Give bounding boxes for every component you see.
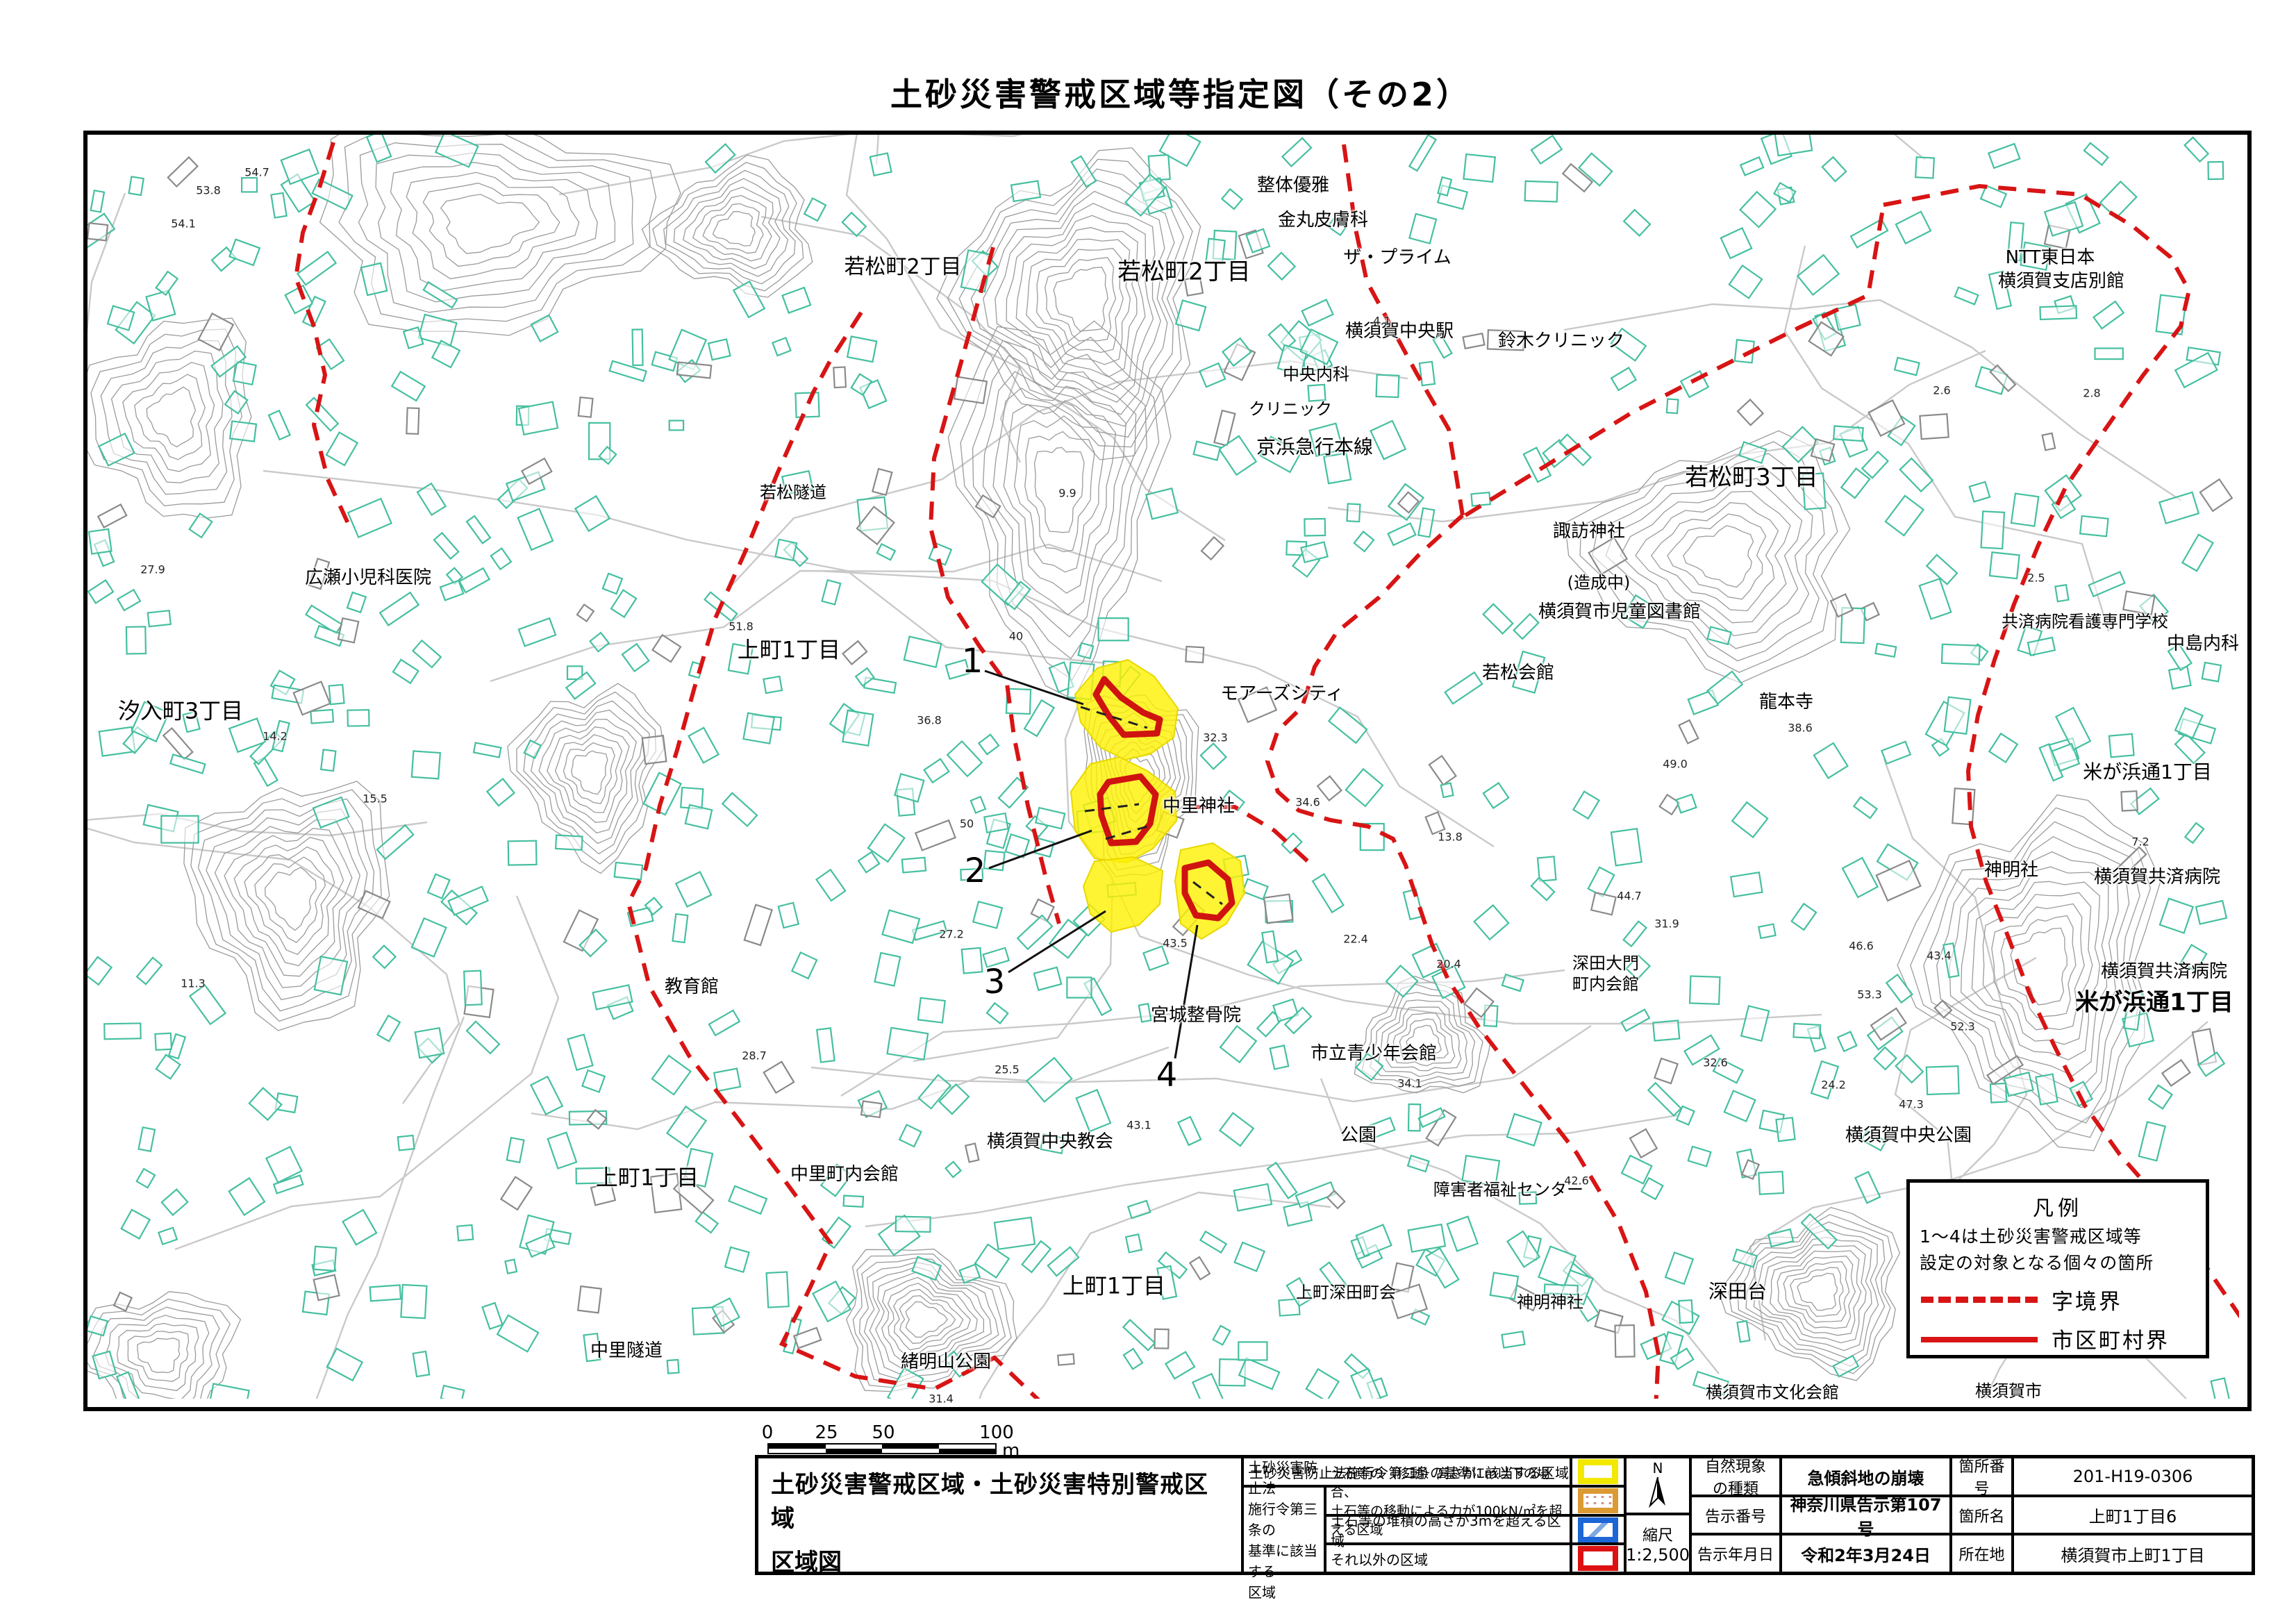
map-label: 横須賀市文化会館 (1706, 1383, 1839, 1403)
map-label: 若松町2丁目 (1117, 258, 1251, 285)
legend-row4-text: それ以外の区域 (1325, 1544, 1571, 1573)
legend-group-label-line: 基準に該当する (1248, 1540, 1324, 1582)
hazard-site-number: 1 (962, 642, 983, 681)
map-label: 中里隧道 (590, 1341, 663, 1362)
spot-elevation-label: 2.6 (1933, 384, 1950, 397)
map-label: 横須賀共済病院 (2094, 867, 2220, 888)
spot-elevation-label: 9.9 (1058, 487, 1076, 500)
spot-elevation-label: 32.3 (1203, 731, 1228, 744)
spot-elevation-label: 20.4 (1436, 958, 1461, 971)
spot-elevation-label: 47.3 (1899, 1098, 1924, 1111)
map-label: 横須賀中央公園 (1845, 1126, 1972, 1147)
info-value-notice-number: 神奈川県告示第107号 (1781, 1496, 1951, 1534)
info-label-address: 所在地 (1951, 1534, 2013, 1573)
map-label: 若松町3丁目 (1685, 464, 1818, 491)
north-arrow-icon (1646, 1475, 1670, 1510)
spot-elevation-label: 52.3 (1950, 1020, 1975, 1033)
map-label: 共済病院看護専門学校 (2002, 613, 2168, 632)
spot-elevation-label: 25.5 (995, 1063, 1020, 1076)
map-label: 深田大門 (1572, 954, 1639, 974)
info-label-site-name: 箇所名 (1951, 1496, 2013, 1534)
info-value-site-number: 201-H19-0306 (2013, 1457, 2253, 1496)
spot-elevation-label: 50 (960, 817, 974, 831)
spot-elevation-label: 49.0 (1663, 758, 1688, 771)
map-label: (造成中) (1567, 574, 1631, 593)
spot-elevation-label: 32.6 (1703, 1056, 1728, 1069)
legend-entry-label: 字境界 (2052, 1284, 2122, 1315)
spot-elevation-label: 13.8 (1438, 831, 1463, 844)
map-label: 上町深田町会 (1296, 1283, 1396, 1303)
hazard-site-number: 3 (984, 963, 1006, 1001)
dashed-line-sample (1921, 1297, 2038, 1303)
map-label: 中央内科 (1283, 365, 1349, 385)
spot-elevation-label: 24.2 (1821, 1079, 1846, 1092)
scale-tick-25: 25 (815, 1422, 838, 1443)
map-label: 金丸皮膚科 (1278, 210, 1368, 231)
spot-elevation-label: 4.1 (1373, 315, 1390, 328)
map-label: 深田台 (1708, 1281, 1767, 1303)
map-label: 諏訪神社 (1553, 522, 1625, 542)
map-label: 公園 (1340, 1126, 1376, 1147)
map-sheet-title-line2: 区域図 (771, 1543, 842, 1577)
spot-elevation-label: 11.3 (181, 977, 206, 990)
map-label: 障害者福祉センター (1433, 1181, 1583, 1200)
spot-elevation-label: 38.6 (1788, 722, 1813, 735)
scale-tick-0: 0 (762, 1422, 774, 1443)
map-label: 横須賀支店別館 (1998, 272, 2124, 292)
spot-elevation-label: 44.7 (1617, 890, 1642, 903)
hazard-map-page: 土砂災害警戒区域等指定図（その2） 若松町2丁目若松町2丁目整体優雅金丸皮膚科ザ… (0, 0, 2296, 1623)
map-label: 町内会館 (1572, 975, 1639, 994)
spot-elevation-label: 22.4 (1343, 933, 1368, 946)
map-label: 広瀬小児科医院 (305, 568, 431, 589)
spot-elevation-label: 15.5 (363, 792, 388, 806)
legend-title: 凡例 (1910, 1191, 2206, 1222)
spot-elevation-label: 31.9 (1654, 917, 1679, 931)
spot-elevation-label: 34.6 (1295, 796, 1320, 809)
map-label: 鈴木クリニック (1498, 331, 1624, 352)
spot-elevation-label: 42.6 (1564, 1174, 1589, 1188)
scale-tick-50: 50 (872, 1422, 895, 1443)
legend-row2-text-line1: 土石等の（移動）高さが1m以下の場合、 (1331, 1463, 1570, 1501)
info-label-phenomenon: 自然現象の種類 (1702, 1454, 1769, 1499)
spot-elevation-label: 53.3 (1857, 988, 1882, 1001)
solid-line-sample (1921, 1337, 2038, 1342)
map-label: クリニック (1249, 400, 1332, 419)
map-sheet-title-line1: 土砂災害警戒区域・土砂災害特別警戒区域 (771, 1465, 1229, 1533)
spot-elevation-label: 51.8 (729, 620, 754, 633)
red-zone-swatch (1578, 1546, 1618, 1571)
map-label: 整体優雅 (1257, 176, 1329, 197)
spot-elevation-label: 53.8 (196, 184, 221, 197)
spot-elevation-label: 43.4 (1927, 949, 1952, 963)
spot-elevation-label: 2.5 (2027, 572, 2045, 585)
spot-elevation-label: 2.8 (2083, 387, 2100, 400)
info-table: 土砂災害警戒区域・土砂災害特別警戒区域 区域図 土砂災害防止法施行令第二条の基準… (757, 1457, 2253, 1573)
map-label: 緒明山公園 (901, 1352, 991, 1373)
map-label: 横須賀市児童図書館 (1538, 602, 1701, 623)
spot-elevation-label: 27.9 (140, 563, 165, 576)
map-label: 米が浜通1丁目 (2075, 989, 2233, 1016)
map-label: 市立青少年会館 (1311, 1044, 1437, 1065)
spot-elevation-label: 7.2 (2131, 835, 2149, 849)
map-label: 汐入町3丁目 (118, 699, 243, 724)
spot-elevation-label: 36.8 (917, 714, 942, 727)
legend-group-label-line: 施行令第三条の (1248, 1499, 1324, 1540)
spot-elevation-label: 43.1 (1126, 1119, 1151, 1132)
map-label: 宮城整骨院 (1151, 1006, 1241, 1026)
map-label: 上町1丁目 (596, 1165, 699, 1191)
map-label: 教育館 (665, 977, 719, 998)
map-label: 若松会館 (1482, 663, 1554, 684)
map-label: 京浜急行本線 (1256, 436, 1373, 458)
spot-elevation-label: 34.1 (1397, 1077, 1422, 1090)
spot-elevation-label: 14.2 (263, 730, 288, 743)
map-label: 龍本寺 (1759, 692, 1813, 713)
legend-group-label-line: 区域 (1248, 1582, 1276, 1603)
hazard-site-number: 2 (965, 851, 986, 890)
map-label: 横須賀共済病院 (2101, 962, 2227, 983)
map-label: 横須賀中央駅 (1345, 322, 1454, 342)
blue-zone-swatch (1578, 1517, 1618, 1542)
legend-row3-text: 土石等の堆積の高さが3mを超える区域 (1325, 1515, 1571, 1544)
legend-entry-municipal-boundary: 市区町村界 (1910, 1322, 2206, 1352)
map-label: 中島内科 (2167, 634, 2239, 655)
map-label: 若松町2丁目 (844, 256, 961, 280)
info-label-notice-date: 告示年月日 (1690, 1534, 1781, 1573)
map-label: 横須賀中央教会 (987, 1132, 1113, 1153)
orange-zone-swatch (1578, 1488, 1618, 1513)
info-value-site-name: 上町1丁目6 (2013, 1496, 2253, 1534)
north-label: N (1653, 1461, 1663, 1475)
yellow-zone-swatch (1578, 1459, 1618, 1484)
legend-entry-aza-boundary: 字境界 (1910, 1283, 2206, 1313)
map-label: 中里町内会館 (790, 1165, 899, 1185)
info-label-notice-number: 告示番号 (1690, 1496, 1781, 1534)
legend-note-line2: 設定の対象となる個々の箇所 (1920, 1249, 2206, 1274)
spot-elevation-label: 28.7 (742, 1049, 767, 1063)
spot-elevation-label: 54.7 (244, 166, 269, 179)
legend-note-line1: 1～4は土砂災害警戒区域等 (1920, 1223, 2206, 1248)
map-label: モアーズシティ (1220, 684, 1344, 705)
spot-elevation-label: 46.6 (1849, 940, 1874, 953)
map-label: 上町1丁目 (1063, 1274, 1165, 1299)
map-label: 中里神社 (1163, 797, 1235, 817)
legend-entry-label: 市区町村界 (2052, 1323, 2170, 1354)
scale-bar: 0 25 50 100 m (760, 1422, 1024, 1457)
spot-elevation-label: 43.5 (1163, 937, 1188, 950)
spot-elevation-label: 27.2 (939, 928, 964, 941)
map-label: 米が浜通1丁目 (2083, 761, 2212, 783)
spot-elevation-label: 31.4 (929, 1392, 954, 1406)
info-value-address: 横須賀市上町1丁目 (2013, 1534, 2253, 1573)
map-label: 上町1丁目 (738, 638, 840, 663)
map-label: 神明社 (1984, 860, 2038, 881)
spot-elevation-label: 54.1 (171, 217, 196, 231)
map-label: 神明神社 (1517, 1293, 1583, 1313)
map-legend-box: 凡例 1～4は土砂災害警戒区域等 設定の対象となる個々の箇所 字境界 市区町村界 (1906, 1179, 2209, 1358)
map-label: 若松隧道 (760, 483, 826, 503)
map-canvas (0, 0, 2296, 1623)
scale-label: 縮尺 (1642, 1523, 1673, 1545)
info-value-notice-date: 令和2年3月24日 (1781, 1534, 1951, 1573)
spot-elevation-label: 40 (1009, 630, 1023, 643)
scale-bar-segments (767, 1443, 997, 1454)
scale-value: 1:2,500 (1626, 1545, 1690, 1565)
map-label: NTT東日本 (2006, 248, 2095, 269)
legend-group-label-line: 土砂災害防止法 (1248, 1457, 1324, 1499)
info-label-site-number: 箇所番号 (1951, 1457, 2013, 1496)
map-label: 横須賀市 (1975, 1382, 2042, 1401)
map-label: ザ・プライム (1343, 248, 1451, 269)
hazard-site-number: 4 (1156, 1056, 1178, 1095)
